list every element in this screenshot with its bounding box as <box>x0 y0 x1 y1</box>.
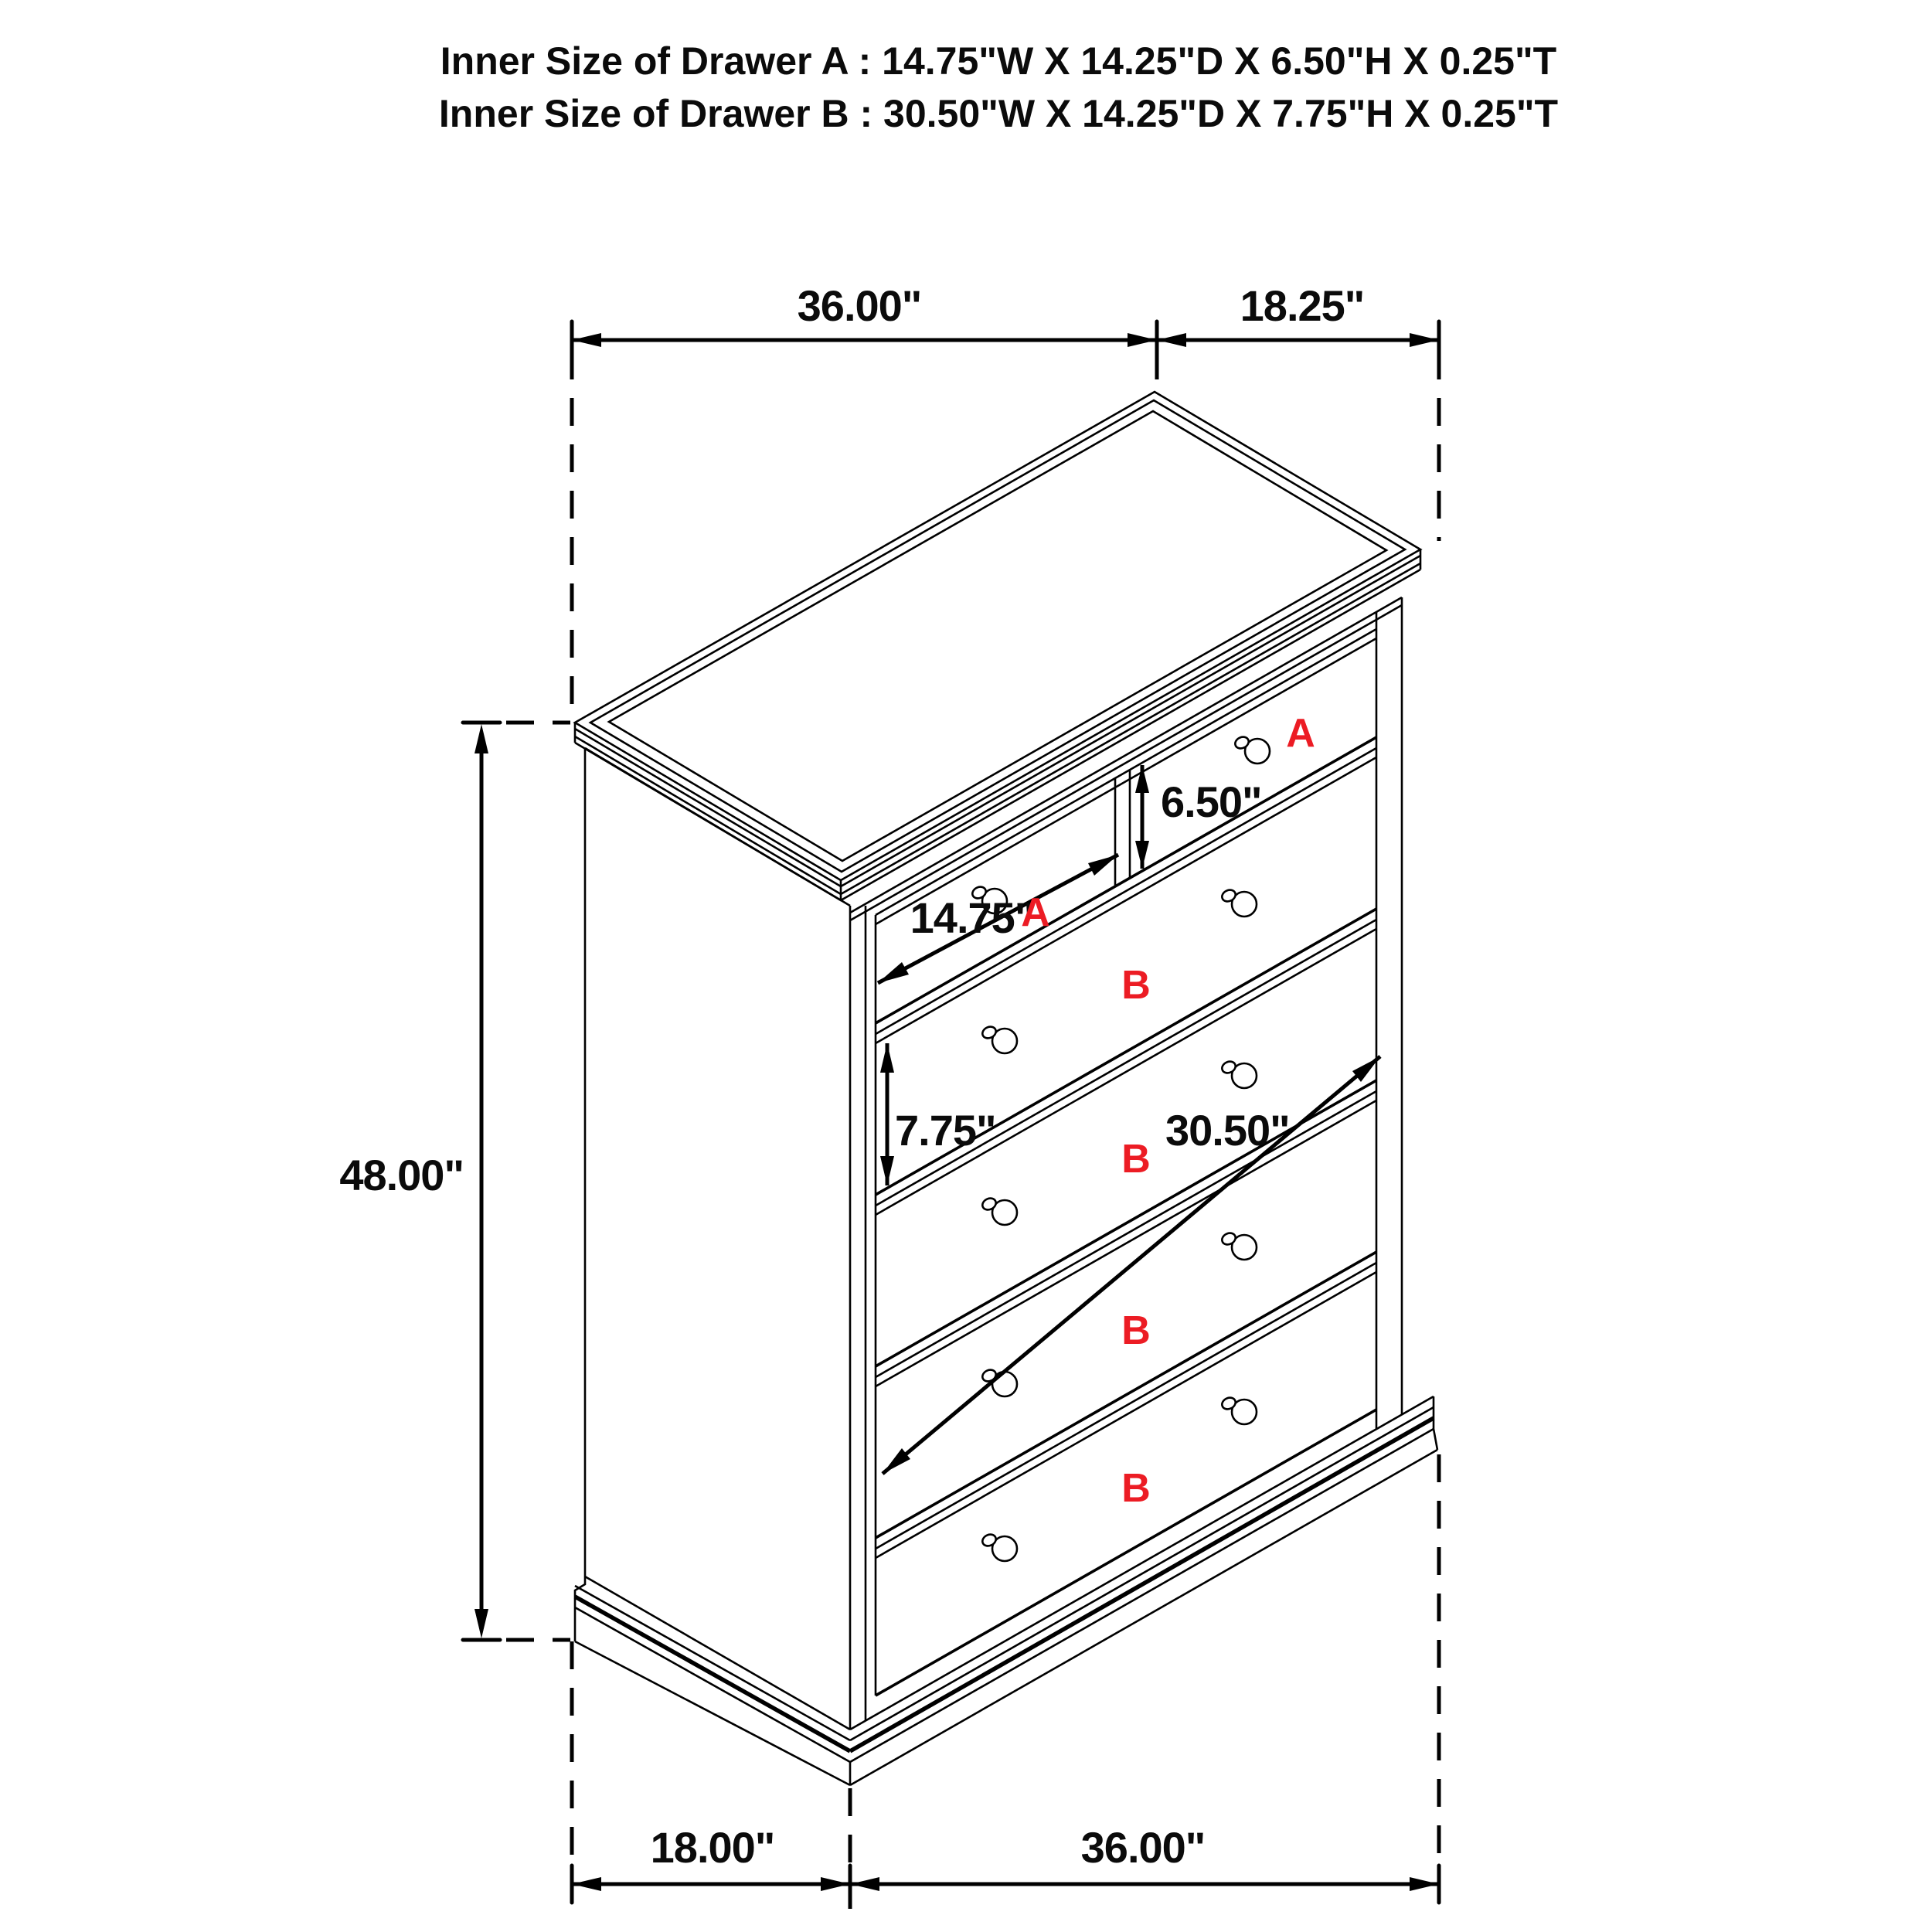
drawer-label-b-row4: B <box>1121 1308 1151 1353</box>
dim-label-overall-height: 48.00" <box>339 1151 464 1199</box>
drawer-knob <box>981 1196 1017 1225</box>
title-line-1: Inner Size of Drawer A : 14.75"W X 14.25… <box>440 39 1556 83</box>
drawer-knob <box>1220 1396 1257 1424</box>
dim-label-base-width: 36.00" <box>1081 1823 1206 1872</box>
arrowhead <box>821 1877 850 1891</box>
drawer-knob <box>1233 735 1270 764</box>
furniture-dimension-diagram: Inner Size of Drawer A : 14.75"W X 14.25… <box>0 0 1932 1932</box>
dimension-drawer-a-height: 6.50" <box>1135 765 1262 869</box>
arrowhead <box>474 1609 488 1638</box>
drawer-knob <box>981 1025 1017 1053</box>
dim-label-drawer-a-height: 6.50" <box>1161 777 1262 826</box>
arrowhead <box>572 1877 601 1891</box>
dim-label-base-depth: 18.00" <box>651 1823 775 1872</box>
dim-label-drawer-b-height: 7.75" <box>895 1106 996 1155</box>
chest-top-face <box>575 392 1420 900</box>
drawer-label-a-right: A <box>1286 711 1315 756</box>
dimension-height: 48.00" <box>339 723 500 1640</box>
arrowhead <box>1128 333 1157 347</box>
arrowhead <box>1410 1877 1439 1891</box>
arrowhead <box>850 1877 879 1891</box>
arrowhead <box>474 724 488 753</box>
drawer-knob <box>1220 888 1257 917</box>
chest-drawing <box>575 392 1437 1785</box>
arrowhead <box>572 333 601 347</box>
chest-base-molding <box>575 1396 1437 1785</box>
dimension-drawer-b-height: 7.75" <box>880 1043 996 1185</box>
drawer-label-b-row3: B <box>1121 1137 1151 1182</box>
drawer-label-a-left: A <box>1021 890 1050 935</box>
dim-label-drawer-a-width: 14.75" <box>910 893 1035 942</box>
drawer-knob <box>1220 1231 1257 1260</box>
diagram-page: Inner Size of Drawer A : 14.75"W X 14.25… <box>0 0 1932 1932</box>
dimension-top: 36.00" 18.25" <box>572 281 1439 359</box>
dim-label-drawer-b-width: 30.50" <box>1165 1106 1290 1155</box>
arrowhead <box>1410 333 1439 347</box>
drawer-knob <box>1220 1060 1257 1088</box>
drawer-label-b-row5: B <box>1121 1466 1151 1511</box>
drawer-knob <box>981 1368 1017 1396</box>
chest-side-panel <box>585 748 866 1730</box>
dim-label-top-depth: 18.25" <box>1240 281 1365 330</box>
arrowhead <box>1157 333 1186 347</box>
drawer-knob <box>981 1532 1017 1561</box>
dimension-bottom: 18.00" 36.00" <box>572 1823 1439 1903</box>
dim-label-top-width: 36.00" <box>798 281 922 330</box>
drawer-label-b-row2: B <box>1121 963 1151 1008</box>
title-line-2: Inner Size of Drawer B : 30.50"W X 14.25… <box>439 92 1558 135</box>
